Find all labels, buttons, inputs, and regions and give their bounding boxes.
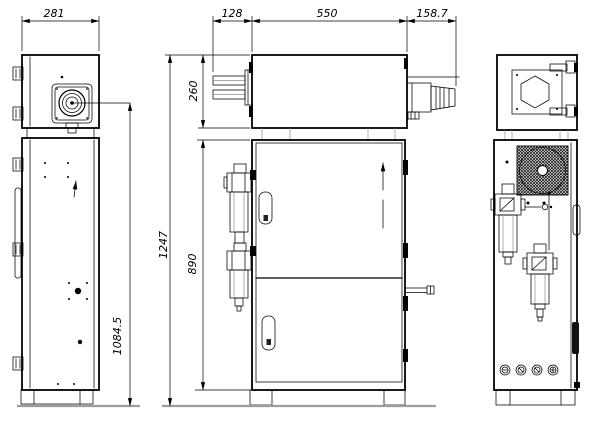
- left-view-top-box: [22, 55, 99, 128]
- dim-row-top: 128 550 158.7: [213, 7, 456, 86]
- technical-drawing-canvas: 281 1084.5: [0, 0, 605, 424]
- door-outline: [256, 143, 402, 382]
- front-cabinet: [252, 140, 405, 390]
- dim-column-left: 260 890 1247: [157, 55, 250, 406]
- gauge: [542, 204, 548, 210]
- fan-hub: [538, 166, 548, 176]
- left-view-base: [21, 390, 93, 404]
- round-socket-connector: [52, 76, 92, 133]
- door-hinge: [403, 349, 408, 362]
- hinge: [550, 105, 578, 117]
- cable-gland-connector: [407, 77, 459, 119]
- panel-hole: [61, 76, 64, 79]
- dim-1084-5: 1084.5: [72, 103, 130, 406]
- dim-1247-label: 1247: [157, 231, 170, 259]
- three-view-drawing: 281 1084.5: [0, 0, 605, 424]
- latch-block: [574, 382, 580, 388]
- gland-fitting: [408, 112, 419, 119]
- dim-1084-5-label: 1084.5: [111, 317, 124, 356]
- panel-hole: [506, 161, 509, 164]
- round-connector: [500, 365, 510, 375]
- hinge: [550, 61, 578, 73]
- right-view-top-box: [497, 55, 577, 130]
- left-view-door-handle-profile: [15, 188, 21, 278]
- left-view-mid-rail: [27, 128, 94, 138]
- front-view: 128 550 158.7 260 890 1247: [157, 7, 459, 406]
- right-view-hinges: [550, 61, 578, 117]
- left-view-panel-holes: [44, 162, 88, 385]
- hinge-nub: [249, 106, 253, 117]
- front-top-box: [252, 55, 407, 128]
- up-arrow-mark: [74, 181, 76, 197]
- left-view-cabinet: [22, 138, 99, 390]
- foot: [384, 390, 405, 405]
- left-side-view: 281 1084.5: [13, 7, 140, 406]
- air-pipe-line: [548, 192, 551, 251]
- mounting-rail-right: [505, 130, 568, 140]
- round-connector: [516, 365, 526, 375]
- keyhole: [267, 339, 272, 345]
- left-fork-bracket: [213, 70, 252, 105]
- hinge-nub: [249, 62, 253, 73]
- hex-gland-plate: [512, 70, 562, 114]
- dim-158-7-label: 158.7: [416, 7, 448, 20]
- fan-grille: [517, 146, 568, 195]
- upper-door-handle: [259, 192, 272, 224]
- side-pipe-fitting: [405, 286, 434, 294]
- dim-550-label: 550: [317, 7, 338, 20]
- door-hinge: [403, 160, 408, 175]
- door-handle-profile-lower: [572, 322, 579, 354]
- door-hinge: [403, 243, 408, 258]
- keyhole: [264, 215, 269, 221]
- round-connector: [548, 365, 558, 375]
- hexagon-cutout: [521, 76, 549, 108]
- frl-unit-upper: [491, 184, 552, 264]
- dim-281: 281: [22, 7, 99, 51]
- door-hinge: [403, 296, 408, 311]
- dim-260-label: 260: [187, 81, 200, 102]
- right-view-base: [496, 390, 575, 405]
- dim-890-label: 890: [186, 254, 199, 275]
- round-connector: [532, 365, 542, 375]
- panel-connectors-row: [500, 365, 558, 375]
- right-side-view: [491, 55, 580, 405]
- lower-door-handle: [262, 316, 275, 350]
- hinge-nub: [404, 58, 408, 69]
- panel-hole: [527, 202, 530, 205]
- dim-281-label: 281: [44, 7, 65, 20]
- foot: [250, 390, 272, 405]
- mounting-rail: [262, 128, 395, 140]
- frl-unit-lower: [523, 244, 557, 321]
- dim-128-label: 128: [222, 7, 243, 20]
